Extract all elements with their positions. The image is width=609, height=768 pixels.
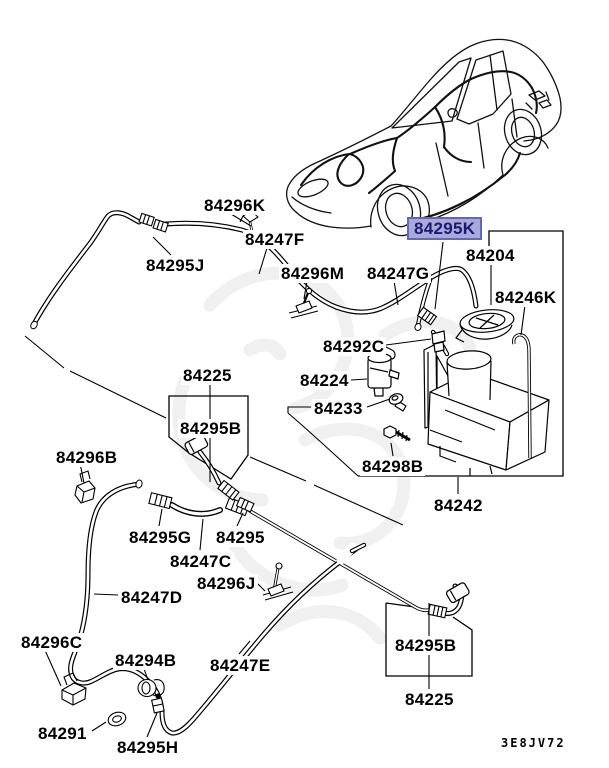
- nozzle-lower: [445, 582, 470, 604]
- part-label-84296B[interactable]: 84296B: [54, 448, 119, 467]
- part-label-84247F[interactable]: 84247F: [243, 230, 306, 249]
- rear-washer-parts: [526, 91, 551, 109]
- clip-84296B: [75, 471, 95, 503]
- part-label-84247G[interactable]: 84247G: [365, 264, 431, 283]
- part-label-84225-bottom[interactable]: 84225: [403, 690, 456, 709]
- part-label-84295K-highlighted[interactable]: 84295K: [407, 217, 482, 240]
- car-drawing: [287, 39, 561, 241]
- part-label-84296J[interactable]: 84296J: [195, 574, 258, 593]
- part-label-84233[interactable]: 84233: [312, 399, 365, 418]
- part-label-84291[interactable]: 84291: [36, 724, 89, 743]
- part-label-84204[interactable]: 84204: [464, 246, 517, 265]
- part-label-84225-top[interactable]: 84225: [181, 366, 234, 385]
- part-label-84295[interactable]: 84295: [214, 528, 267, 547]
- headlight: [296, 176, 331, 201]
- part-label-84295H[interactable]: 84295H: [115, 738, 180, 757]
- part-label-84247E[interactable]: 84247E: [208, 656, 272, 675]
- grommet-84291: [106, 710, 127, 728]
- part-label-84247D[interactable]: 84247D: [119, 588, 184, 607]
- part-label-84296K[interactable]: 84296K: [202, 196, 267, 215]
- grommet-84233: [388, 392, 406, 411]
- part-label-84247C[interactable]: 84247C: [168, 552, 233, 571]
- part-label-84246K[interactable]: 84246K: [493, 288, 558, 307]
- parts-diagram: 84296K 84247F 84295J 84296M 84247G 84295…: [0, 0, 609, 768]
- joint-84295G: [149, 493, 172, 509]
- part-label-84295B-top[interactable]: 84295B: [178, 419, 243, 438]
- part-label-84294B[interactable]: 84294B: [113, 651, 178, 670]
- part-label-84296M[interactable]: 84296M: [279, 264, 346, 283]
- part-label-84295B-bottom[interactable]: 84295B: [393, 636, 458, 655]
- filler-neck: [446, 349, 491, 400]
- part-label-84295G[interactable]: 84295G: [127, 528, 193, 547]
- part-label-84295J[interactable]: 84295J: [144, 256, 207, 275]
- part-label-84292C[interactable]: 84292C: [321, 337, 386, 356]
- diagram-code: 3E8JV72: [501, 736, 566, 750]
- part-label-84298B[interactable]: 84298B: [360, 457, 425, 476]
- clip-84295H: [152, 694, 164, 713]
- part-label-84224[interactable]: 84224: [298, 371, 351, 390]
- part-label-84242[interactable]: 84242: [432, 496, 485, 515]
- part-label-84296C[interactable]: 84296C: [19, 633, 84, 652]
